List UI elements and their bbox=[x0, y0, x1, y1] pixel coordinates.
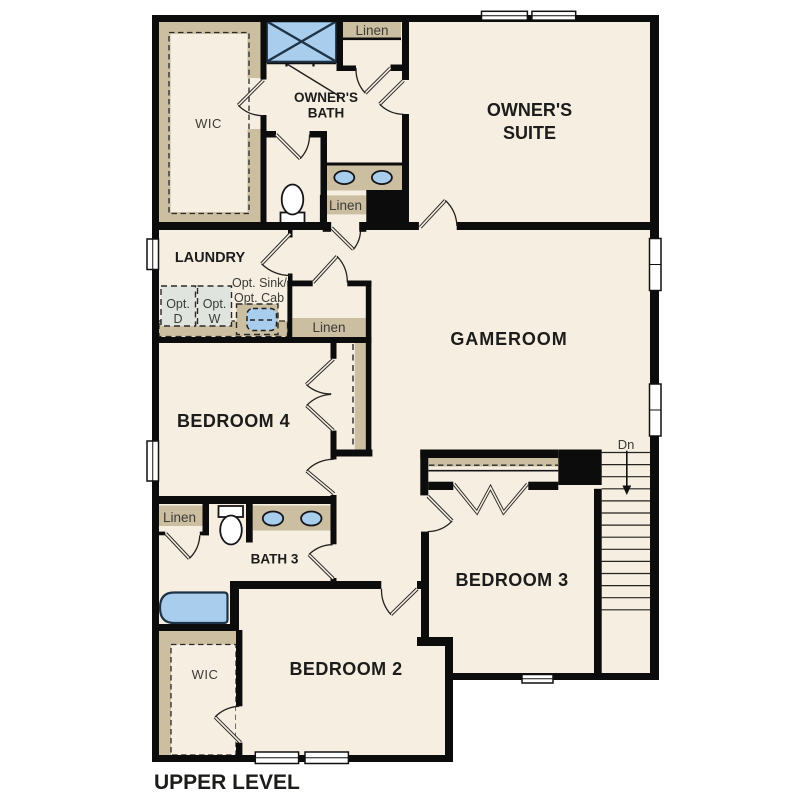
svg-text:BEDROOM 2: BEDROOM 2 bbox=[289, 659, 402, 679]
svg-text:UPPER LEVEL: UPPER LEVEL bbox=[154, 771, 300, 794]
svg-text:Linen: Linen bbox=[355, 23, 388, 38]
svg-text:BEDROOM 3: BEDROOM 3 bbox=[455, 570, 568, 590]
svg-text:Opt. Sink/: Opt. Sink/ bbox=[232, 276, 287, 290]
svg-text:SUITE: SUITE bbox=[503, 123, 556, 143]
svg-text:BEDROOM 4: BEDROOM 4 bbox=[177, 411, 290, 431]
svg-text:Linen: Linen bbox=[329, 198, 362, 213]
svg-text:LAUNDRY: LAUNDRY bbox=[175, 250, 246, 266]
svg-text:Opt. Cab: Opt. Cab bbox=[234, 291, 284, 305]
svg-text:GAMEROOM: GAMEROOM bbox=[450, 329, 567, 349]
svg-text:D: D bbox=[173, 312, 182, 326]
svg-text:WIC: WIC bbox=[192, 667, 219, 682]
svg-text:OWNER'S: OWNER'S bbox=[294, 90, 358, 105]
svg-text:Opt.: Opt. bbox=[203, 297, 227, 311]
svg-text:BATH: BATH bbox=[308, 106, 345, 121]
svg-text:Linen: Linen bbox=[163, 510, 196, 525]
svg-text:WIC: WIC bbox=[195, 116, 222, 131]
svg-text:Dn: Dn bbox=[618, 437, 635, 452]
svg-text:OWNER'S: OWNER'S bbox=[487, 100, 572, 120]
svg-text:W: W bbox=[209, 312, 221, 326]
svg-text:Linen: Linen bbox=[312, 320, 345, 335]
svg-text:Opt.: Opt. bbox=[166, 297, 190, 311]
svg-text:BATH 3: BATH 3 bbox=[251, 552, 299, 567]
